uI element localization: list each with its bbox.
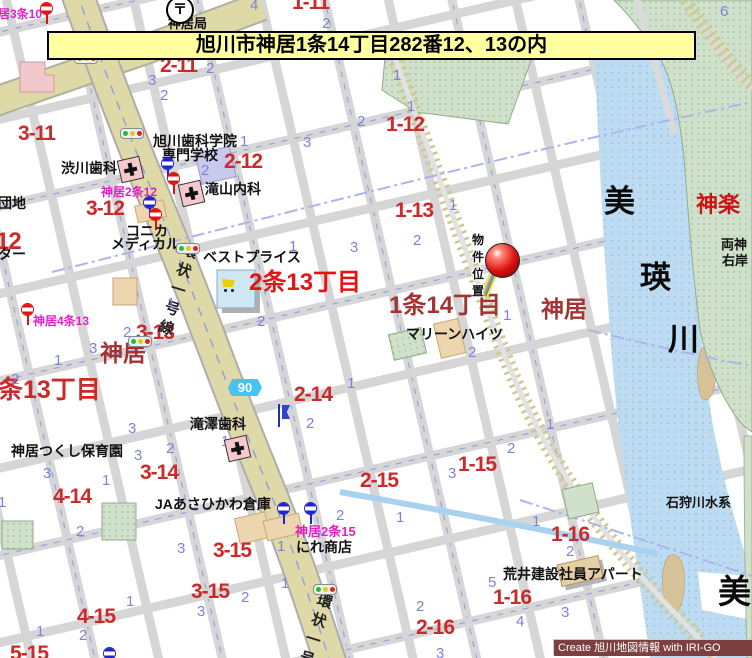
property-location-label: 物件位置 (472, 231, 484, 299)
buildings (2, 62, 607, 590)
pin-ball-icon (485, 243, 520, 278)
route-90-shield: 90 (228, 379, 262, 396)
watermark-credit: Create 旭川地図情報 with IRI-GO (554, 640, 752, 656)
title-banner: 旭川市神居1条14丁目282番12、13の内 (47, 31, 696, 60)
route-number: 90 (238, 380, 252, 395)
map-base (0, 0, 752, 658)
map-canvas: 3-112-111-111-122-123-121-133-13122-143-… (0, 0, 752, 658)
map-title: 旭川市神居1条14丁目282番12、13の内 (196, 34, 547, 56)
